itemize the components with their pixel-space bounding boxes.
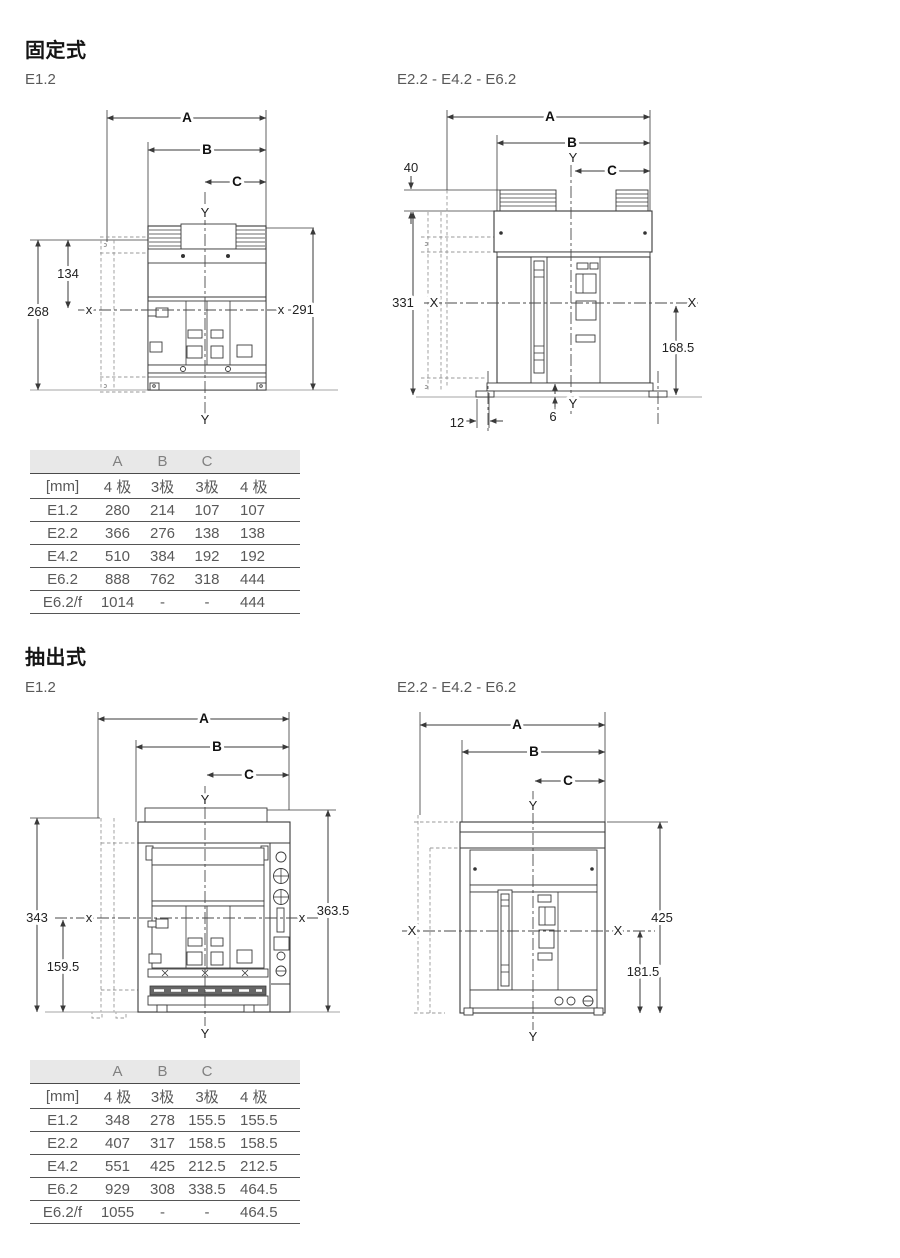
drawing-label-withdrawable-e2246: E2.2 - E4.2 - E6.2	[397, 679, 516, 696]
cell: 762	[140, 568, 185, 591]
cell	[229, 450, 300, 474]
dim-label-c: C	[563, 773, 573, 788]
table-row: E6.2/f 1014 - - 444	[30, 591, 300, 614]
extension-lines	[30, 110, 314, 242]
cell: 158.5	[185, 1132, 229, 1155]
dim-value-425: 425	[651, 910, 673, 925]
axis-label-y-bottom: Y	[529, 1029, 538, 1044]
dim-value-12: 12	[450, 415, 464, 430]
cell: 888	[95, 568, 140, 591]
breaker-body	[460, 822, 605, 1015]
dim-value-291: 291	[292, 302, 314, 317]
cell: 317	[140, 1132, 185, 1155]
cell: -	[185, 591, 229, 614]
drawing-label-fixed-e12: E1.2	[25, 71, 56, 88]
cell: -	[185, 1201, 229, 1224]
axis-label-x-right: x	[278, 302, 285, 317]
cell: 212.5	[185, 1155, 229, 1178]
dim-value-168-5: 168.5	[662, 340, 695, 355]
unit-label: [mm]	[30, 1084, 95, 1109]
axis-label-y-top: Y	[201, 792, 210, 807]
drawing-fixed-e2246: A B C Y Y X X 40 331 168.5 6 12	[395, 98, 705, 438]
axis-label-y-bottom: Y	[201, 412, 210, 427]
dim-label-b: B	[212, 739, 222, 754]
cell: 318	[185, 568, 229, 591]
cell: 280	[95, 499, 140, 522]
cell: 425	[140, 1155, 185, 1178]
breaker-body	[138, 808, 290, 1012]
row-label: E1.2	[30, 499, 95, 522]
table-row: E1.2 348 278 155.5 155.5	[30, 1109, 300, 1132]
pole-header: 4 极	[229, 474, 300, 499]
breaker-body	[148, 224, 266, 390]
row-label: E6.2	[30, 568, 95, 591]
table-row: E2.2 366 276 138 138	[30, 522, 300, 545]
drawing-fixed-e12: A B C Y Y x x 268 134 291	[20, 98, 350, 433]
cell: 138	[185, 522, 229, 545]
dim-label-b: B	[202, 142, 212, 157]
col-header-b: B	[140, 1060, 185, 1084]
cell: 212.5	[229, 1155, 300, 1178]
cell: 929	[95, 1178, 140, 1201]
axis-label-x-left: X	[430, 295, 439, 310]
row-label: E4.2	[30, 545, 95, 568]
cell	[30, 450, 95, 474]
cell: -	[140, 1201, 185, 1224]
dim-value-134: 134	[57, 266, 79, 281]
axis-label-x-right: X	[688, 295, 697, 310]
axis-label-y-bottom: Y	[201, 1026, 210, 1041]
cell: 138	[229, 522, 300, 545]
table-row: E1.2 280 214 107 107	[30, 499, 300, 522]
pole-header: 3极	[185, 474, 229, 499]
dim-value-181-5: 181.5	[627, 964, 660, 979]
dim-label-a: A	[545, 109, 555, 124]
cell: 384	[140, 545, 185, 568]
cell: 366	[95, 522, 140, 545]
cell: 1055	[95, 1201, 140, 1224]
door-dashed-outline	[100, 237, 148, 392]
dim-value-6: 6	[549, 409, 556, 424]
axis-label-x-left: X	[408, 923, 417, 938]
row-label: E6.2/f	[30, 1201, 95, 1224]
section-heading-withdrawable: 抽出式	[25, 641, 87, 670]
row-label: E6.2	[30, 1178, 95, 1201]
extension-lines	[30, 712, 336, 822]
table-row: E2.2 407 317 158.5 158.5	[30, 1132, 300, 1155]
axis-label-y-bottom: Y	[569, 396, 578, 411]
drawing-withdrawable-e12: A B C Y Y x x 343 159.5 363.5	[20, 700, 350, 1045]
cell: 214	[140, 499, 185, 522]
catalog-page: { "sections": { "fixed": {"heading": "固定…	[0, 0, 900, 1258]
pole-header: 4 极	[95, 474, 140, 499]
breaker-body	[476, 190, 667, 397]
table-row: E6.2 888 762 318 444	[30, 568, 300, 591]
pole-header: 3极	[140, 1084, 185, 1109]
table-group-header-row: A B C	[30, 450, 300, 474]
table-group-header-row: A B C	[30, 1060, 300, 1084]
cell: 444	[229, 568, 300, 591]
dim-label-c: C	[607, 163, 617, 178]
cell: 308	[140, 1178, 185, 1201]
cell: 510	[95, 545, 140, 568]
cell: 158.5	[229, 1132, 300, 1155]
unit-label: [mm]	[30, 474, 95, 499]
axis-label-y-top: Y	[529, 798, 538, 813]
dimensions-table-fixed: A B C [mm] 4 极 3极 3极 4 极 E1.2 280 214 10…	[30, 450, 300, 614]
dim-value-159-5: 159.5	[47, 959, 80, 974]
cell: 155.5	[229, 1109, 300, 1132]
dim-label-b: B	[567, 135, 577, 150]
dim-label-c: C	[232, 174, 242, 189]
drawing-label-withdrawable-e12: E1.2	[25, 679, 56, 696]
dim-value-363-5: 363.5	[317, 903, 350, 918]
dim-label-a: A	[182, 110, 192, 125]
cell: 407	[95, 1132, 140, 1155]
axis-label-x-left: x	[86, 302, 93, 317]
dim-value-268: 268	[27, 304, 49, 319]
cell: 444	[229, 591, 300, 614]
cell: 464.5	[229, 1201, 300, 1224]
cell	[30, 1060, 95, 1084]
dim-value-40: 40	[404, 160, 418, 175]
dim-label-a: A	[199, 711, 209, 726]
cell: 192	[229, 545, 300, 568]
table-subheader-row: [mm] 4 极 3极 3极 4 极	[30, 474, 300, 499]
dim-label-b: B	[529, 744, 539, 759]
drawing-label-fixed-e2246: E2.2 - E4.2 - E6.2	[397, 71, 516, 88]
row-label: E2.2	[30, 522, 95, 545]
pole-header: 4 极	[229, 1084, 300, 1109]
axis-label-x-left: x	[86, 910, 93, 925]
cell: 107	[229, 499, 300, 522]
cell: 1014	[95, 591, 140, 614]
col-header-b: B	[140, 450, 185, 474]
cell: 155.5	[185, 1109, 229, 1132]
cell: 464.5	[229, 1178, 300, 1201]
axis-label-y-top: Y	[569, 150, 578, 165]
cell: 348	[95, 1109, 140, 1132]
col-header-c: C	[185, 1060, 229, 1084]
row-label: E2.2	[30, 1132, 95, 1155]
cell	[229, 1060, 300, 1084]
axis-label-x-right: x	[299, 910, 306, 925]
pole-header: 3极	[140, 474, 185, 499]
drawing-withdrawable-e2246: A B C Y Y X X 425 181.5	[390, 700, 700, 1045]
door-dashed-outline	[421, 190, 494, 392]
table-row: E6.2 929 308 338.5 464.5	[30, 1178, 300, 1201]
axis-label-x-right: X	[614, 923, 623, 938]
pole-header: 3极	[185, 1084, 229, 1109]
row-label: E1.2	[30, 1109, 95, 1132]
cell: 276	[140, 522, 185, 545]
section-heading-fixed: 固定式	[25, 34, 87, 63]
cell: 107	[185, 499, 229, 522]
col-header-c: C	[185, 450, 229, 474]
row-label: E6.2/f	[30, 591, 95, 614]
cell: -	[140, 591, 185, 614]
table-row: E4.2 551 425 212.5 212.5	[30, 1155, 300, 1178]
row-label: E4.2	[30, 1155, 95, 1178]
extension-lines	[420, 712, 668, 822]
cell: 551	[95, 1155, 140, 1178]
dim-value-343: 343	[26, 910, 48, 925]
dimensions-table-withdrawable: A B C [mm] 4 极 3极 3极 4 极 E1.2 348 278 15…	[30, 1060, 300, 1224]
table-subheader-row: [mm] 4 极 3极 3极 4 极	[30, 1084, 300, 1109]
cell: 338.5	[185, 1178, 229, 1201]
dim-value-331: 331	[392, 295, 414, 310]
axis-label-y-top: Y	[201, 205, 210, 220]
dim-label-c: C	[244, 767, 254, 782]
col-header-a: A	[95, 450, 140, 474]
cell: 278	[140, 1109, 185, 1132]
door-dashed-outline	[414, 815, 462, 1013]
cell: 192	[185, 545, 229, 568]
table-row: E4.2 510 384 192 192	[30, 545, 300, 568]
col-header-a: A	[95, 1060, 140, 1084]
dim-label-a: A	[512, 717, 522, 732]
pole-header: 4 极	[95, 1084, 140, 1109]
table-row: E6.2/f 1055 - - 464.5	[30, 1201, 300, 1224]
